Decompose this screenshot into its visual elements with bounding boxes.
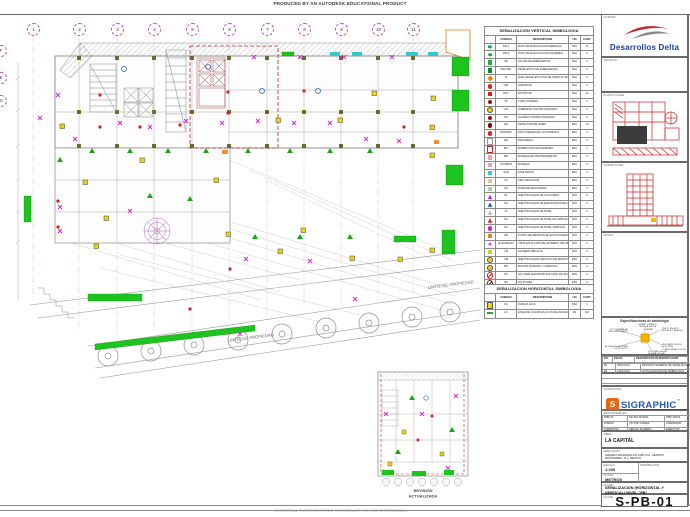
legend-symbol-icon xyxy=(487,272,494,279)
spec-callout: ALTURA DE MONTAJE 2.10 M S.N.P.T. xyxy=(604,346,628,351)
client-name: Desarrollos Delta xyxy=(602,43,687,52)
legend-unit: PZA xyxy=(569,201,581,209)
legend-unit: PZA xyxy=(569,256,581,264)
legend-count: 2 xyxy=(581,138,594,146)
legend-row: VU VER UBICACION PZA 2 xyxy=(485,177,594,185)
legend-row: PEA/TEL SEÑALETICA DE EMERGENCIA PZA 2 xyxy=(485,67,594,75)
legend-description: DETECTOR DE HUMO xyxy=(517,122,569,130)
legend-code: EPS/SPA xyxy=(496,130,517,138)
legend-symbol-icon xyxy=(488,218,493,223)
legend-count: 4 xyxy=(581,217,594,225)
legend-unit: PZA xyxy=(569,138,581,146)
legend-symbol-icon xyxy=(488,187,493,192)
legend-unit: PZA xyxy=(569,82,581,90)
legend-description: BODEGA DE MANTENIMIENTO xyxy=(517,153,569,161)
legend-unit: PZA xyxy=(569,75,581,83)
legend-code: GCI xyxy=(496,106,517,114)
legend-row: NU NO USAR ELEVADOR EN CASO DE SISMO O I… xyxy=(485,272,594,280)
legend-code: RS-3 xyxy=(496,51,517,59)
limit-of-property-label-1: LIMITE DE PROPIEDAD xyxy=(227,332,274,343)
revisions-header: NO. FECHA DESCRIPCION DE MODIFICACION xyxy=(603,357,688,363)
legend-count: 4 xyxy=(581,264,594,272)
legend-symbol-icon xyxy=(487,265,494,272)
legend-symbol-icon xyxy=(487,312,493,314)
grid-bubble: 7 xyxy=(261,23,274,36)
legend-code: EXT xyxy=(496,90,517,98)
legend-count: 4 xyxy=(581,209,594,217)
legend-unit: PZA xyxy=(569,209,581,217)
titleblock-notes-box: NOTAS: xyxy=(601,232,688,317)
legend-symbol-icon xyxy=(488,163,493,168)
legend-unit: PZA xyxy=(569,232,581,240)
floor-plan: LIMITE DE PROPIEDAD LIMITE DE PROPIEDAD xyxy=(0,0,482,517)
legend-code: NC xyxy=(496,217,517,225)
legend-row: BCI BOMBA CONTRA INCENDIO PZA 1 xyxy=(485,146,594,154)
legend-unit: PZA xyxy=(569,59,581,67)
legend-count: 4 xyxy=(581,106,594,114)
legend-symbol-icon xyxy=(488,84,493,89)
legend-count: 2 xyxy=(581,201,594,209)
legend-code: NL xyxy=(496,193,517,201)
legend-code: RE xyxy=(496,138,517,146)
legend-count: 12 xyxy=(581,90,594,98)
legend-unit: PZA xyxy=(569,301,581,310)
titleblock-keyplan-box: PLANTA CLAVE: xyxy=(601,92,688,162)
legend-code: RS-2 xyxy=(496,43,517,51)
legend-unit: PZA xyxy=(569,51,581,59)
legend-code: CM xyxy=(496,256,517,264)
legend-code: HID xyxy=(496,82,517,90)
legend-count: 1 xyxy=(581,301,594,310)
titleblock-project-box: OBRA: LA CAPITAL xyxy=(601,431,688,448)
titleblock-consultant-box: CONSULTOR: S SIGRAPHIC™ SEÑALIZACION GRA… xyxy=(601,386,688,410)
legend-description: HIDRANTE xyxy=(517,82,569,90)
legend-row: TS TOMA SIAMESA PZA 1 xyxy=(485,98,594,106)
legend-row: NC IDENTIFICADOR DE NIVEL EN CRISTAL PZA… xyxy=(485,217,594,225)
croquis-label: CROQUIS: xyxy=(604,59,618,62)
legend-description: BOCINA SONORA Y LUMINOSA xyxy=(517,264,569,272)
legend-description: SEÑALETICA DE EMERGENCIA xyxy=(517,67,569,75)
legend-symbol-icon xyxy=(488,179,493,184)
legend-count: 2 xyxy=(581,161,594,169)
legend-symbol-icon xyxy=(488,250,493,255)
legend-row: GCI GABINETE CONTRA INCENDIO PZA 4 xyxy=(485,106,594,114)
building-shell xyxy=(16,30,470,318)
legend-count: 4 xyxy=(581,169,594,177)
legend-row: NI IDENTIFICADOR DE NIVEL PZA 4 xyxy=(485,209,594,217)
legend-count: 6 xyxy=(581,51,594,59)
legend-count: 2 xyxy=(581,67,594,75)
notes-label: NOTAS: xyxy=(604,234,614,237)
legend-row: LB LETRERO BRAILLE PZA 2 xyxy=(485,248,594,256)
legend-count: 2 xyxy=(581,256,594,264)
legend-row: EPS/SPA SOLO PERSONAL AUTORIZADO PZA 4 xyxy=(485,130,594,138)
legend-count: 1 xyxy=(581,232,594,240)
legend-row: SE SALIDA DE EMERGENCIA PZA 4 xyxy=(485,59,594,67)
titleblock-scale-box: ESCALA: 1:200 COTAS: METROS APROBACION: xyxy=(601,462,688,482)
grid-bubble: 9 xyxy=(335,23,348,36)
legend-row: CTO/BOD BODEGA PZA 2 xyxy=(485,161,594,169)
grid-bubble: 1 xyxy=(27,23,40,36)
legend-code: NA xyxy=(496,201,517,209)
legend-description: LETRERO BRAILLE xyxy=(517,248,569,256)
legend-row: FG FRANJA GUIA PZA 1 xyxy=(485,301,594,310)
legend-description: SALIDA DE EMERGENCIA xyxy=(517,59,569,67)
legend-symbol-icon xyxy=(488,100,493,105)
legend-description: QUE HACER EN CASO DE SISMO E INCENDIO xyxy=(517,75,569,83)
legend-unit: PZA xyxy=(569,161,581,169)
titleblock-address-box: DIRECCION: AVENIDA WASHINGTON 3405 COL. … xyxy=(601,448,688,462)
revisions-table: NO. FECHA DESCRIPCION DE MODIFICACION xyxy=(602,356,688,363)
legend-unit: PZA xyxy=(569,122,581,130)
legend-description: IDENTIFICADOR DE LOCATARIO xyxy=(517,193,569,201)
legend-description: PUNTO DE REUNION EN ESTACIONAMIENTO (LUM… xyxy=(517,232,569,240)
legend-row: ACI ALARMA CONTRA INCENDIO PZA 6 xyxy=(485,114,594,122)
spec-callout: PICTOGRAMA EN VINIL REFLEJANTE xyxy=(604,329,628,334)
legend-symbol-icon xyxy=(488,123,493,128)
legend-unit: PZA xyxy=(569,264,581,272)
titleblock-responsibles-box: RESPONSABLES: DIBUJO FELIPE RIVERA DIBUJ… xyxy=(601,410,688,431)
legend-count: 2 xyxy=(581,248,594,256)
legend-symbol-icon xyxy=(488,194,493,199)
legend-row: BM BODEGA DE MANTENIMIENTO PZA 2 xyxy=(485,153,594,161)
legend-unit: PZA xyxy=(569,193,581,201)
legend-row: ELEV/BAND VISTA EN PLANTA DE LETRERO TIP… xyxy=(485,240,594,248)
grid-bubble: 3 xyxy=(111,23,124,36)
legend-code: ACI xyxy=(496,114,517,122)
legend-unit: PZA xyxy=(569,240,581,248)
legend-code: BM xyxy=(496,153,517,161)
horizontal-legend-headers: CODIGO DESCRIPCION UN CANT xyxy=(485,294,594,302)
consultant-label: CONSULTOR: xyxy=(604,388,622,391)
legend-unit: PZA xyxy=(569,169,581,177)
legend-code: IS xyxy=(496,75,517,83)
legend-code: FG xyxy=(496,301,517,310)
legend-description: IDENTIFICADOR DE NIVEL EN CRISTAL xyxy=(517,217,569,225)
grid-bubble: 5 xyxy=(186,23,199,36)
legend-code: LB xyxy=(496,248,517,256)
titleblock-symbol-spec-box: Especificaciones de simbología PICTOGRAM… xyxy=(601,317,688,355)
legend-count: 4 xyxy=(581,240,594,248)
legend-count: 1 xyxy=(581,98,594,106)
legend-count: 4 xyxy=(581,59,594,67)
legend-code: NV xyxy=(496,224,517,232)
legend-unit: PZA xyxy=(569,130,581,138)
legend-row: PE PUNTO DE REUNION EN ESTACIONAMIENTO (… xyxy=(485,232,594,240)
legend-unit: PZA xyxy=(569,114,581,122)
client-label: CLIENTE: xyxy=(604,16,617,19)
legend-description: NO USAR ELEVADOR EN CASO DE SISMO O INCE… xyxy=(517,272,569,280)
legend-symbol-icon xyxy=(488,68,493,73)
sheet-number: S-PB-01 xyxy=(602,494,687,509)
legend-symbol-icon xyxy=(488,52,493,57)
grid-bubble: 11 xyxy=(407,23,420,36)
legend-code: ELEV/BAND xyxy=(496,240,517,248)
legend-description: ZONA DE SEGURIDAD xyxy=(517,185,569,193)
legend-unit: PZA xyxy=(569,272,581,280)
legend-symbol-icon xyxy=(487,107,494,114)
legend-symbol-icon xyxy=(487,138,494,145)
legend-count: 4 xyxy=(581,130,594,138)
legend-count: 2 xyxy=(581,153,594,161)
legend-description: TOMA SIAMESA xyxy=(517,98,569,106)
horizontal-legend-title: SEÑALIZACION HORIZONTAL SIMBOLOGIA xyxy=(485,285,594,294)
legend-unit: PZA xyxy=(569,146,581,154)
grid-bubble: 6 xyxy=(223,23,236,36)
legend-description: RUTA DE EVACUACION IZQUIERDA xyxy=(517,51,569,59)
legend-unit: PZA xyxy=(569,90,581,98)
legend-description: IDENTIFICADOR DE NIVEL VERTICAL xyxy=(517,224,569,232)
inset-label-line2: ACTUALIZADA xyxy=(409,494,438,499)
vertical-legend-headers: CODIGO DESCRIPCION UN CANT xyxy=(485,36,594,44)
legend-count: 110 xyxy=(581,310,594,319)
titleblock-sheet-number-box: CLAVE: S-PB-01 xyxy=(601,494,688,507)
grid-bubble: 4 xyxy=(148,23,161,36)
legend-description: IDENTIFICADOR CIRCUITO DE MONITOREO xyxy=(517,256,569,264)
legend-symbol-icon xyxy=(487,257,494,264)
project-name: LA CAPITAL xyxy=(605,438,634,444)
legend-code: NI xyxy=(496,209,517,217)
sigraphic-logo-mark: S xyxy=(606,398,619,411)
drawing-sheet: PRODUCED BY AN AUTODESK EDUCATIONAL PROD… xyxy=(0,0,690,517)
legend-unit: PZA xyxy=(569,106,581,114)
legend-symbol-icon xyxy=(487,302,494,309)
keyplan-drawing xyxy=(605,98,685,160)
legend-description: IDENTIFICADOR DE ELEVADOR PARA USO DE BO… xyxy=(517,201,569,209)
legend-count: 2 xyxy=(581,224,594,232)
legend-code: TS xyxy=(496,98,517,106)
legend-description: VER UBICACION xyxy=(517,177,569,185)
legend-row: RE REGADERA PZA 2 xyxy=(485,138,594,146)
legend-unit: ML xyxy=(569,310,581,319)
limit-of-property-label-2: LIMITE DE PROPIEDAD xyxy=(427,279,474,290)
responsibles-label: RESPONSABLES: xyxy=(604,412,628,415)
legend-count: 2 xyxy=(581,75,594,83)
legend-code: PE xyxy=(496,232,517,240)
legend-unit: PZA xyxy=(569,98,581,106)
legend-code: PEA/TEL xyxy=(496,67,517,75)
legend-description: FRANJA GUIA xyxy=(517,301,569,310)
legend-description: SANITARIOS xyxy=(517,169,569,177)
legend-count: 6 xyxy=(581,193,594,201)
grid-bubble: 2 xyxy=(73,23,86,36)
legend-description: LINEA DE COLOR EN 10 CM DE ANCHO xyxy=(517,310,569,319)
legend-count: 2 xyxy=(581,272,594,280)
legend-symbol-icon xyxy=(488,171,493,176)
vertical-legend-title: SEÑALIZACIÓN VERTICAL SIMBOLOGIA xyxy=(485,27,594,36)
legend-symbol-icon xyxy=(488,155,493,160)
legend-row: CM IDENTIFICADOR CIRCUITO DE MONITOREO P… xyxy=(485,256,594,264)
legend-row: NV IDENTIFICADOR DE NIVEL VERTICAL PZA 2 xyxy=(485,224,594,232)
legend-symbol-icon xyxy=(488,242,493,247)
legend-count: 1 xyxy=(581,146,594,154)
legend-description: BODEGA xyxy=(517,161,569,169)
legend-symbol-icon xyxy=(487,146,494,153)
legend-code: BS xyxy=(496,264,517,272)
legend-symbol-icon xyxy=(488,210,493,215)
legend-symbol-icon xyxy=(488,60,493,65)
legend-count: 3 xyxy=(581,185,594,193)
legend-description: ALARMA CONTRA INCENDIO xyxy=(517,114,569,122)
legend-description: GABINETE CONTRA INCENDIO xyxy=(517,106,569,114)
legend-row: NA IDENTIFICADOR DE ELEVADOR PARA USO DE… xyxy=(485,201,594,209)
legend-description: IDENTIFICADOR DE NIVEL xyxy=(517,209,569,217)
legend-code: SE xyxy=(496,59,517,67)
legend-symbol-icon xyxy=(487,76,492,81)
legend-row: SAN SANITARIOS PZA 4 xyxy=(485,169,594,177)
legend-code: DH xyxy=(496,122,517,130)
keysection-label: CORTE CLAVE: xyxy=(604,164,625,167)
legend-count: 8 xyxy=(581,43,594,51)
grid-bubble: 8 xyxy=(298,23,311,36)
titleblock-croquis-box: CROQUIS: xyxy=(601,57,688,92)
legend-description: SOLO PERSONAL AUTORIZADO xyxy=(517,130,569,138)
legend-symbol-icon xyxy=(488,92,493,97)
legend-unit: PZA xyxy=(569,217,581,225)
horizontal-signage-legend: SEÑALIZACION HORIZONTAL SIMBOLOGIA CODIG… xyxy=(484,284,594,319)
spec-callout: SEÑAL SOBRE EL MURO A EJE DE PUERTA xyxy=(636,324,660,331)
legend-row: ZS ZONA DE SEGURIDAD PZA 3 xyxy=(485,185,594,193)
legend-row: RS-2 RUTA DE EVACUACION DERECHA PZA 8 xyxy=(485,43,594,51)
legend-code: SAN xyxy=(496,169,517,177)
legend-code: ZS xyxy=(496,185,517,193)
titleblock-revisions-box: NO. FECHA DESCRIPCION DE MODIFICACION R1… xyxy=(601,355,688,373)
legend-unit: PZA xyxy=(569,43,581,51)
legend-unit: PZA xyxy=(569,248,581,256)
desarrollos-delta-logo-mark xyxy=(618,21,674,43)
legend-row: DH DETECTOR DE HUMO PZA 10 xyxy=(485,122,594,130)
address-value: AVENIDA WASHINGTON 3405 COL. CENTRO, MON… xyxy=(605,454,683,461)
legend-unit: PZA xyxy=(569,224,581,232)
legend-symbol-icon xyxy=(488,116,493,121)
legend-code: NU xyxy=(496,272,517,280)
approval-label: APROBACION: xyxy=(640,464,660,467)
legend-unit: PZA xyxy=(569,185,581,193)
legend-symbol-icon xyxy=(488,234,493,239)
legend-count: 6 xyxy=(581,114,594,122)
legend-count: 2 xyxy=(581,177,594,185)
legend-count: 4 xyxy=(581,82,594,90)
legend-code: VU xyxy=(496,177,517,185)
legend-row: RS-3 RUTA DE EVACUACION IZQUIERDA PZA 6 xyxy=(485,51,594,59)
legend-symbol-icon xyxy=(488,226,493,231)
legend-row: HID HIDRANTE PZA 4 xyxy=(485,82,594,90)
keyplan-label: PLANTA CLAVE: xyxy=(604,94,626,97)
street-trees xyxy=(98,302,460,366)
inset-label-line1: REVISIÓN xyxy=(413,488,432,493)
legend-code: CTO/BOD xyxy=(496,161,517,169)
legend-symbol-icon xyxy=(488,131,493,136)
legend-description: RUTA DE EVACUACION DERECHA xyxy=(517,43,569,51)
legend-description: EXTINTOR xyxy=(517,90,569,98)
legend-row: BS BOCINA SONORA Y LUMINOSA PZA 4 xyxy=(485,264,594,272)
legend-code: BCI xyxy=(496,146,517,154)
legend-count: 10 xyxy=(581,122,594,130)
legend-code: LC xyxy=(496,310,517,319)
spec-callout: TEXTO EN ALTO RELIEVE Y BRAILLE xyxy=(662,328,686,333)
detail-inset: REVISIÓN ACTUALIZADA xyxy=(378,372,468,499)
legend-row: NL IDENTIFICADOR DE LOCATARIO PZA 6 xyxy=(485,193,594,201)
legend-description: REGADERA xyxy=(517,138,569,146)
legend-unit: PZA xyxy=(569,177,581,185)
titleblock-spacer-rows xyxy=(601,373,688,386)
legend-unit: PZA xyxy=(569,67,581,75)
legend-description: BOMBA CONTRA INCENDIO xyxy=(517,146,569,154)
grid-bubble: 10 xyxy=(372,23,385,36)
vertical-signage-legend: SEÑALIZACIÓN VERTICAL SIMBOLOGIA CODIGO … xyxy=(484,26,594,288)
legend-description: VISTA EN PLANTA DE LETRERO TIPO BANDERA xyxy=(517,240,569,248)
legend-row: LC LINEA DE COLOR EN 10 CM DE ANCHO ML 1… xyxy=(485,310,594,319)
legend-symbol-icon xyxy=(488,45,493,50)
legend-row: IS QUE HACER EN CASO DE SISMO E INCENDIO… xyxy=(485,75,594,83)
legend-symbol-icon xyxy=(488,202,493,207)
keysection-drawing xyxy=(605,168,685,230)
scale-value: 1:200 xyxy=(605,467,615,472)
titleblock-keysection-box: CORTE CLAVE: xyxy=(601,162,688,232)
titleblock-sheet-title-box: PLANO: SEÑALIZACIÓN (HORIZONTAL Y VERTIC… xyxy=(601,482,688,494)
titleblock-client-box: CLIENTE: Desarrollos Delta xyxy=(601,14,688,57)
legend-unit: PZA xyxy=(569,153,581,161)
project-label: OBRA: xyxy=(604,433,613,436)
legend-row: EXT EXTINTOR PZA 12 xyxy=(485,90,594,98)
